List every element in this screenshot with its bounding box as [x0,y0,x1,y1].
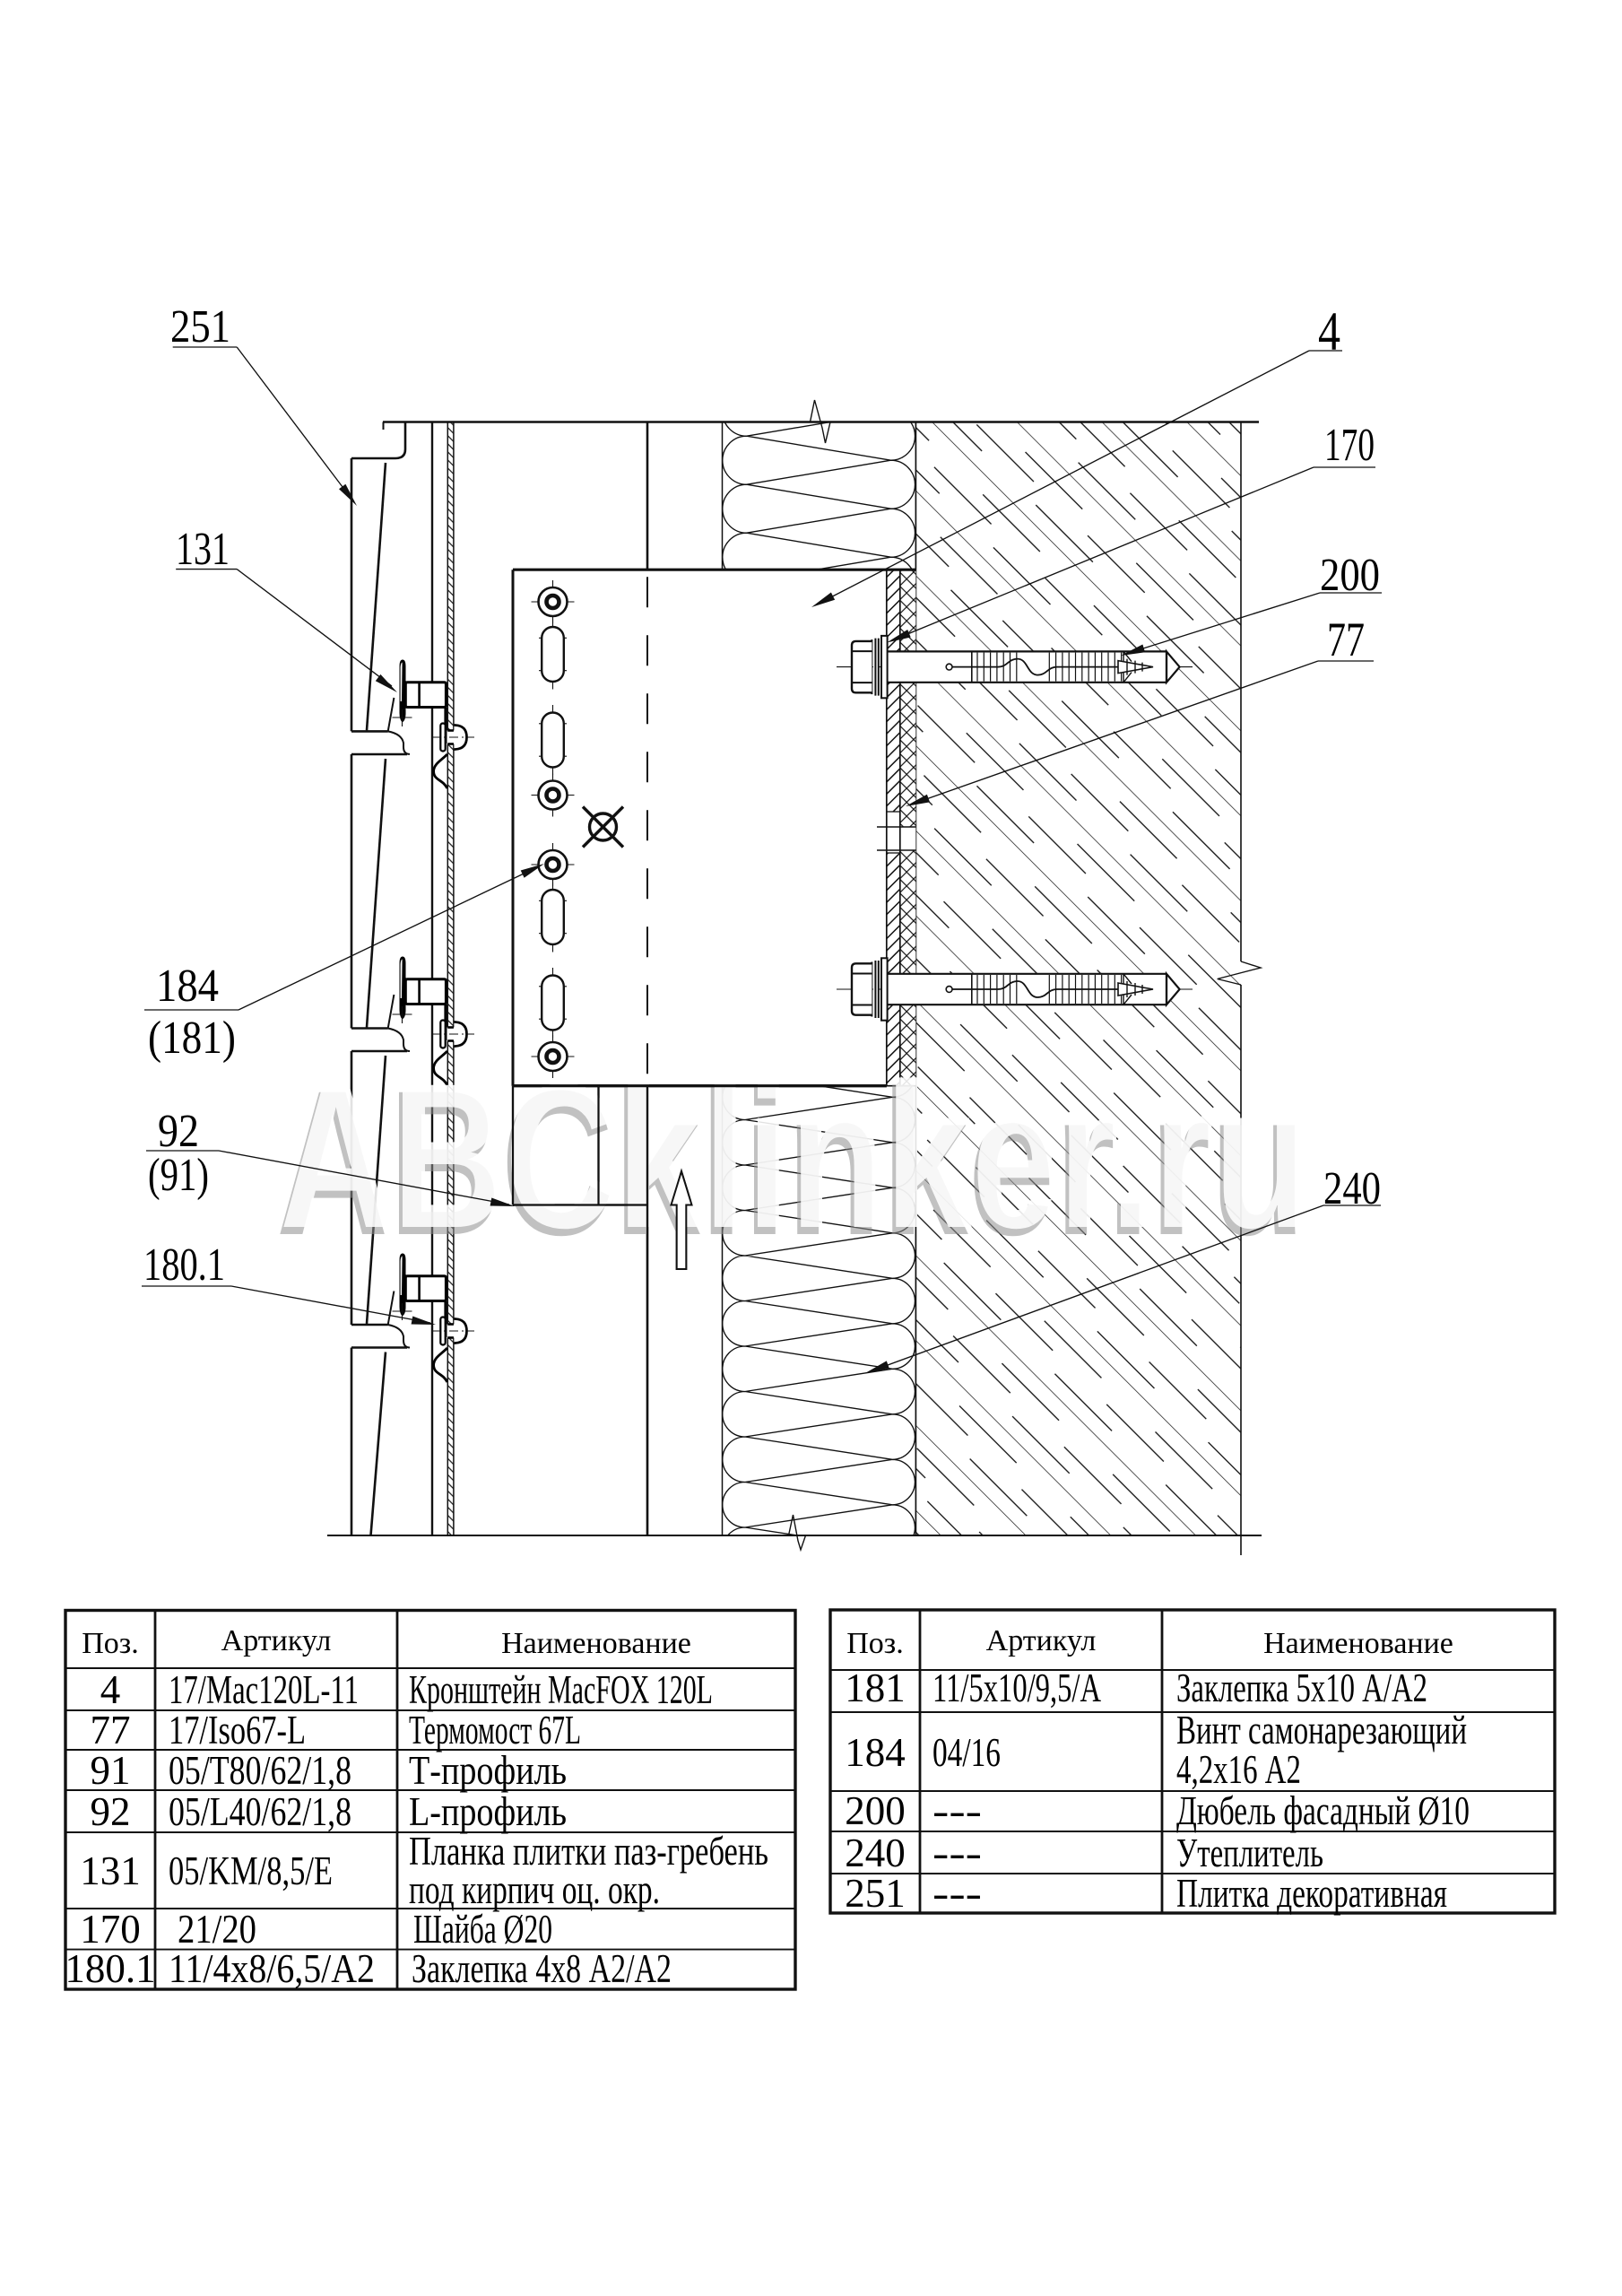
svg-text:Заклепка 5x10 А/А2: Заклепка 5x10 А/А2 [1176,1665,1427,1710]
svg-text:Т-профиль: Т-профиль [409,1748,567,1793]
svg-text:Дюбель фасадный Ø10: Дюбель фасадный Ø10 [1176,1788,1470,1833]
svg-text:(181): (181) [148,1013,236,1064]
svg-text:240: 240 [845,1831,906,1875]
svg-text:Плитка декоративная: Плитка декоративная [1176,1871,1447,1916]
svg-text:Винт самонарезающий: Винт самонарезающий [1176,1708,1467,1752]
svg-text:Артикул: Артикул [986,1624,1097,1657]
svg-text:11/5x10/9,5/А: 11/5x10/9,5/А [932,1665,1101,1710]
svg-text:180.1: 180.1 [143,1239,225,1291]
svg-text:Утеплитель: Утеплитель [1176,1831,1323,1875]
svg-text:11/4x8/6,5/А2: 11/4x8/6,5/А2 [169,1946,375,1991]
svg-text:184: 184 [156,961,219,1012]
svg-text:4: 4 [1318,302,1340,362]
svg-text:17/Mac120L-11: 17/Mac120L-11 [169,1667,359,1712]
svg-text:---: --- [932,1871,982,1916]
svg-text:под кирпич оц. окр.: под кирпич оц. окр. [409,1867,660,1912]
svg-text:ABCklinker.ru: ABCklinker.ru [280,1040,1309,1271]
svg-text:91: 91 [91,1748,131,1793]
svg-text:92: 92 [91,1789,131,1834]
svg-text:05/L40/62/1,8: 05/L40/62/1,8 [169,1789,351,1834]
svg-text:251: 251 [845,1871,906,1916]
svg-text:Наименование: Наименование [1263,1627,1453,1660]
svg-text:184: 184 [845,1730,906,1775]
svg-text:04/16: 04/16 [932,1730,1001,1775]
svg-text:170: 170 [80,1907,141,1952]
svg-text:181: 181 [845,1665,906,1710]
svg-text:17/Iso67-L: 17/Iso67-L [169,1708,306,1752]
svg-text:21/20: 21/20 [178,1907,256,1952]
svg-text:4: 4 [100,1667,121,1712]
svg-text:131: 131 [80,1848,141,1893]
svg-text:Шайба Ø20: Шайба Ø20 [413,1907,552,1952]
svg-text:Термомост 67L: Термомост 67L [409,1708,581,1752]
svg-text:251: 251 [170,301,230,352]
svg-text:L-профиль: L-профиль [409,1789,567,1834]
svg-text:Поз.: Поз. [846,1627,903,1660]
svg-text:---: --- [932,1788,982,1833]
svg-text:Поз.: Поз. [82,1627,138,1660]
svg-text:180.1: 180.1 [65,1946,155,1991]
svg-text:77: 77 [91,1708,131,1752]
svg-text:---: --- [932,1831,982,1875]
svg-text:Кронштейн MacFOX 120L: Кронштейн MacFOX 120L [409,1667,713,1712]
svg-text:05/T80/62/1,8: 05/T80/62/1,8 [169,1748,351,1793]
svg-text:4,2x16 А2: 4,2x16 А2 [1176,1747,1301,1792]
svg-text:131: 131 [176,524,230,575]
svg-text:05/KM/8,5/Е: 05/KM/8,5/Е [169,1848,333,1893]
svg-text:240: 240 [1323,1163,1381,1214]
svg-text:200: 200 [845,1788,906,1833]
svg-text:77: 77 [1327,613,1365,666]
svg-text:200: 200 [1320,550,1380,601]
svg-text:170: 170 [1324,420,1375,471]
svg-text:Наименование: Наименование [501,1627,691,1660]
svg-text:(91): (91) [148,1150,209,1201]
svg-text:Артикул: Артикул [221,1624,332,1657]
svg-text:Заклепка 4x8 А2/А2: Заклепка 4x8 А2/А2 [412,1946,672,1991]
